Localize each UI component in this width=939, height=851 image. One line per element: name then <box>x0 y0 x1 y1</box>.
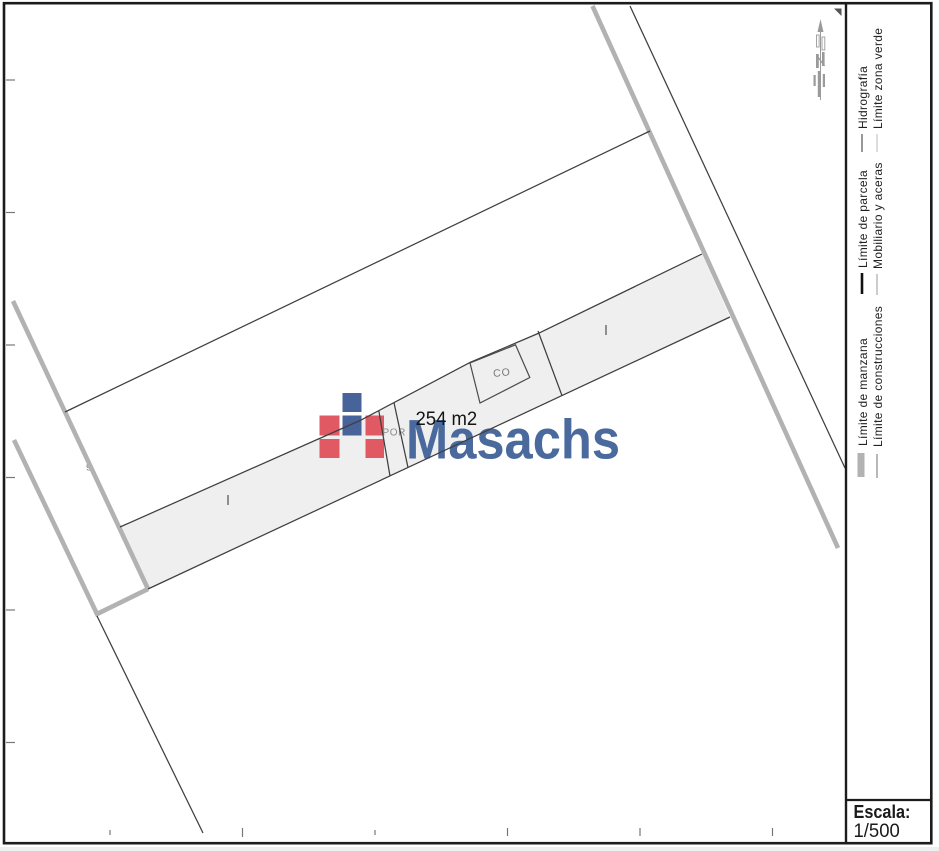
svg-text:POR: POR <box>383 428 406 439</box>
svg-text:254 m2: 254 m2 <box>416 409 478 431</box>
svg-text:CO: CO <box>493 366 512 380</box>
svg-text:Hidrografía: Hidrografía <box>856 66 870 129</box>
svg-text:Límite zona verde: Límite zona verde <box>871 28 885 129</box>
svg-text:Límite de parcela: Límite de parcela <box>856 170 870 268</box>
svg-text:Límite de manzana: Límite de manzana <box>856 338 870 446</box>
svg-text:Límite de construcciones: Límite de construcciones <box>871 306 885 447</box>
svg-text:Escala:: Escala: <box>854 801 911 822</box>
svg-text:Mobiliario y aceras: Mobiliario y aceras <box>871 162 885 269</box>
svg-text:1/500: 1/500 <box>854 821 900 843</box>
